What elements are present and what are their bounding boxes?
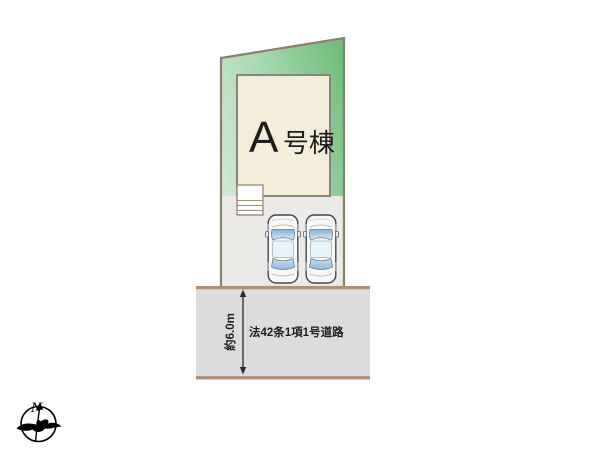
car-2: [303, 215, 338, 283]
building-label-letter: A: [249, 113, 279, 162]
road-edge-top: [196, 286, 370, 289]
road-name-label: 法42条1項1号道路: [249, 325, 344, 339]
compass: N: [17, 401, 62, 442]
site-plan: A 号棟 約6.0m 法42条1項1号道路 N: [0, 0, 600, 450]
road-edge-bottom: [196, 376, 370, 379]
site-plan-page: A 号棟 約6.0m 法42条1項1号道路 N: [0, 0, 600, 450]
north-label: N: [30, 401, 43, 416]
car-1: [265, 215, 300, 283]
entrance-steps: [237, 185, 263, 215]
road-width-label: 約6.0m: [223, 313, 237, 351]
building-label-suffix: 号棟: [283, 128, 335, 158]
